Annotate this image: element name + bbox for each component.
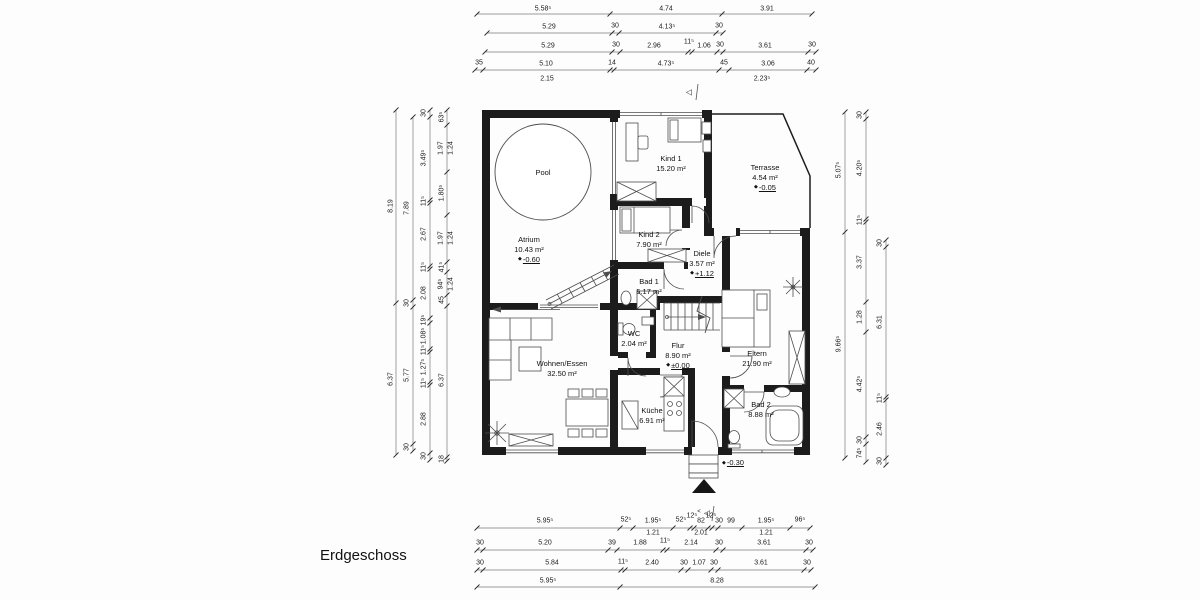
dim-label: 30 [715,518,723,525]
dim-label: 1.95⁵ [645,518,662,525]
dim-label: 45 [720,60,728,67]
dim-label: 6.37 [439,373,446,387]
sink-bad2 [774,387,790,397]
dim-label: 3.61 [758,43,772,50]
dim-label: 30 [808,42,816,49]
dim-label: 1.28 [857,310,864,324]
chair [596,429,607,437]
dining-table [566,399,608,426]
room-name: Bad 2 [748,400,773,410]
dim-label: 11⁵ [618,559,628,566]
level-value: ±0.00 [671,361,690,371]
dim-label: 6.37 [388,372,395,386]
dim-label: 1.27⁵ [421,359,428,376]
dim-label: 30 [680,560,688,567]
dim-label: 30 [612,42,620,49]
dim-label: 30 [877,457,884,465]
level-marker-icon: ◆ [666,362,670,369]
dim-label: 1.95⁵ [758,518,775,525]
dim-label: 30 [857,436,864,444]
dim-label: 6.31 [877,315,884,329]
plant-wohnen [485,421,509,445]
dim-label: 1.06 [697,43,711,50]
dim-label: 4.74 [659,6,673,13]
room-name: Diele [689,249,714,259]
level-annotation: ◆+1.12 [689,269,714,279]
section-marker-small-icon: < [697,509,701,515]
dim-label: 1.24 [448,141,455,155]
room-label-wohnen: Wohnen/Essen 32.50 m² [537,359,588,379]
page-title: Erdgeschoss [320,547,407,564]
dim-label: 1.07 [692,560,706,567]
room-label-pool: Pool [535,168,550,178]
level-annotation: ◆±0.00 [665,361,690,371]
section-marker-icon: ◁ [686,88,692,97]
dim-label: 11⁵ [660,538,670,545]
dim-label: 11⁵ [877,393,884,403]
dim-label: 1.97 [438,231,445,245]
room-label-kind2: Kind 2 7.90 m² [636,230,661,250]
pillow [670,120,678,140]
room-label-wc: WC 2.04 m² [621,329,646,349]
level-marker-icon: ◆ [518,256,522,263]
dim-label: 30 [710,560,718,567]
dim-label: 19⁵ [421,315,428,326]
dim-label: 39 [608,540,616,547]
level-annotation: ◆-0.05 [751,183,780,193]
room-area: 8.90 m² [665,351,690,361]
chair [568,389,579,397]
dim-label: 12⁵ [687,513,698,520]
room-label-kind1: Kind 1 15.20 m² [656,154,686,174]
dim-label: 30 [715,23,723,30]
dim-label: 4.13⁵ [659,24,676,31]
room-name: Pool [535,168,550,178]
floorplan-drawing [0,0,1200,600]
dim-label: 11⁵ [421,196,428,206]
dim-label: 8.19 [388,199,395,213]
level-annotation: ◆-0.60 [514,255,544,265]
dim-label: 5.77 [404,368,411,382]
dim-label: 11⁵ [421,345,428,355]
dim-label: 5.29 [541,43,555,50]
level-value: +1.12 [695,269,714,279]
dim-label: 5.20 [538,540,552,547]
dim-label: 30 [803,560,811,567]
room-name: Wohnen/Essen [537,359,588,369]
dim-label: 9.66⁵ [836,336,843,353]
room-area: 32.50 m² [537,369,588,379]
room-area: 8.88 m² [748,410,773,420]
dim-label: 1.21 [759,530,773,537]
room-area: 7.90 m² [636,240,661,250]
dim-label: 3.06 [761,61,775,68]
pillow [622,209,631,231]
dim-label: 5.84 [545,560,559,567]
sink-wc [642,317,654,325]
dim-label: 5.95⁵ [537,518,554,525]
dim-label: 1.88 [633,540,647,547]
dim-label: 99 [727,518,735,525]
dim-label: 30 [611,23,619,30]
dim-label: 96⁵ [795,517,806,524]
room-label-terrasse: Terrasse 4.54 m² ◆-0.05 [751,163,780,192]
dim-label: 30 [857,111,864,119]
dim-label: 82 [697,518,705,525]
room-area: 3.57 m² [689,259,714,269]
dim-label: 2.14 [684,540,698,547]
room-label-diele: Diele 3.57 m² ◆+1.12 [689,249,714,278]
room-area: 5.17 m² [636,287,661,297]
dim-label: 5.10 [539,61,553,68]
dim-label: 4.42⁵ [857,376,864,393]
dim-label: 8.28 [710,578,724,585]
dim-label: 2.67 [421,227,428,241]
room-name: Bad 1 [636,277,661,287]
dim-label: 3.37 [857,255,864,269]
dim-label: 3.61 [754,560,768,567]
dim-label: 2.23⁵ [754,76,771,83]
dim-label: 94⁵ [438,279,445,290]
room-area: 4.54 m² [751,173,780,183]
dim-label: 1.80⁵ [439,185,446,202]
dim-label: 30 [404,299,411,307]
dim-label: 3.91 [760,6,774,13]
room-name: Eltern [742,349,772,359]
dim-label: 5.07⁵ [836,162,843,179]
room-name: WC [621,329,646,339]
chair [582,429,593,437]
dim-label: 74⁵ [857,448,864,459]
dim-label: 2.01 [694,530,708,537]
dim-label: 11⁵ [684,39,694,46]
room-label-eltern: Eltern 21.90 m² [742,349,772,369]
atrium-ramp [546,265,619,309]
dim-label: 1.97 [438,141,445,155]
dim-label: 63⁵ [439,112,446,123]
dim-label: 2.88 [421,412,428,426]
dim-label: 11⁵ [857,215,864,225]
room-name: Kind 2 [636,230,661,240]
dim-label: 5.95⁵ [540,578,557,585]
dim-label: 11⁵ [421,262,428,272]
dim-label: 30 [421,452,428,460]
dim-label: 30 [716,42,724,49]
room-area: 15.20 m² [656,164,686,174]
dim-label: 14 [608,60,616,67]
dim-label: 18 [439,455,446,463]
dim-label: 4.20⁵ [857,160,864,177]
dim-label: 30 [476,540,484,547]
dim-label: 52⁵ [676,517,687,524]
section-marker-line-top [696,84,698,100]
floorplan-page: Erdgeschoss Pool Atrium 10.43 m² ◆-0.60 … [0,0,1200,600]
room-label-flur: Flur 8.90 m² ◆±0.00 [665,341,690,370]
dim-label: 1.24 [448,277,455,291]
nightstand [702,122,711,134]
room-name: Terrasse [751,163,780,173]
chair [582,389,593,397]
dim-label: 30 [476,560,484,567]
dim-label: 45 [439,296,446,304]
room-name: Kind 1 [656,154,686,164]
dim-label: 52⁵ [621,517,632,524]
desk-kind1 [626,123,638,161]
dim-label: 1.21 [646,530,660,537]
room-label-bad1: Bad 1 5.17 m² [636,277,661,297]
level-marker-icon: ◆ [754,184,758,191]
dim-label: 30 [715,540,723,547]
level-value: -0.60 [523,255,540,265]
entrance-steps [689,455,718,478]
level-marker-icon: ◆ [722,460,726,467]
room-label-bad2: Bad 2 8.88 m² [748,400,773,420]
dim-label: 3.49⁵ [421,150,428,167]
room-area: 10.43 m² [514,245,544,255]
sink-bad1 [621,291,631,305]
dim-label: 30 [877,239,884,247]
level-value: -0.05 [759,183,776,193]
dim-label: 30 [404,443,411,451]
room-label-atrium: Atrium 10.43 m² ◆-0.60 [514,235,544,264]
level-marker-icon: ◆ [690,270,694,277]
dim-label: 2.40 [645,560,659,567]
dim-label: 11⁵ [421,378,428,388]
room-name: Küche [639,406,664,416]
room-name: Atrium [514,235,544,245]
dim-label: 30 [421,109,428,117]
pillow [757,294,767,310]
dim-label: 1.08⁵ [421,328,428,345]
dim-label: 5.29 [542,24,556,31]
room-area: 6.91 m² [639,416,664,426]
dim-label: 7.89 [404,201,411,215]
room-area: 21.90 m² [742,359,772,369]
level-value: -0.30 [727,458,744,468]
room-label-kueche: Küche 6.91 m² [639,406,664,426]
dim-label: 3.61 [757,540,771,547]
level-annotation: ◆-0.30 [722,458,744,468]
chair [596,389,607,397]
dim-label: 5.58⁵ [535,6,552,13]
outside-level-label: ◆-0.30 [722,458,744,468]
dim-label: 1.24 [448,231,455,245]
chair [638,136,648,149]
nightstand [703,140,711,152]
room-name: Flur [665,341,690,351]
dim-label: 2.46 [877,422,884,436]
entrance-marker-icon [692,479,716,493]
plant-eltern [783,277,803,297]
dim-label: 35 [475,60,483,67]
dim-label: 40 [807,60,815,67]
dim-label: 30 [805,540,813,547]
dim-label: 41⁵ [439,262,446,273]
toilet-bad2 [729,431,740,444]
toilet-tank-bad2 [728,444,740,448]
chair [568,429,579,437]
dim-label: 4.73⁵ [658,61,675,68]
dim-label: 2.08 [421,286,428,300]
dim-label: 2.96 [647,43,661,50]
dim-label: 2.15 [540,76,554,83]
room-area: 2.04 m² [621,339,646,349]
